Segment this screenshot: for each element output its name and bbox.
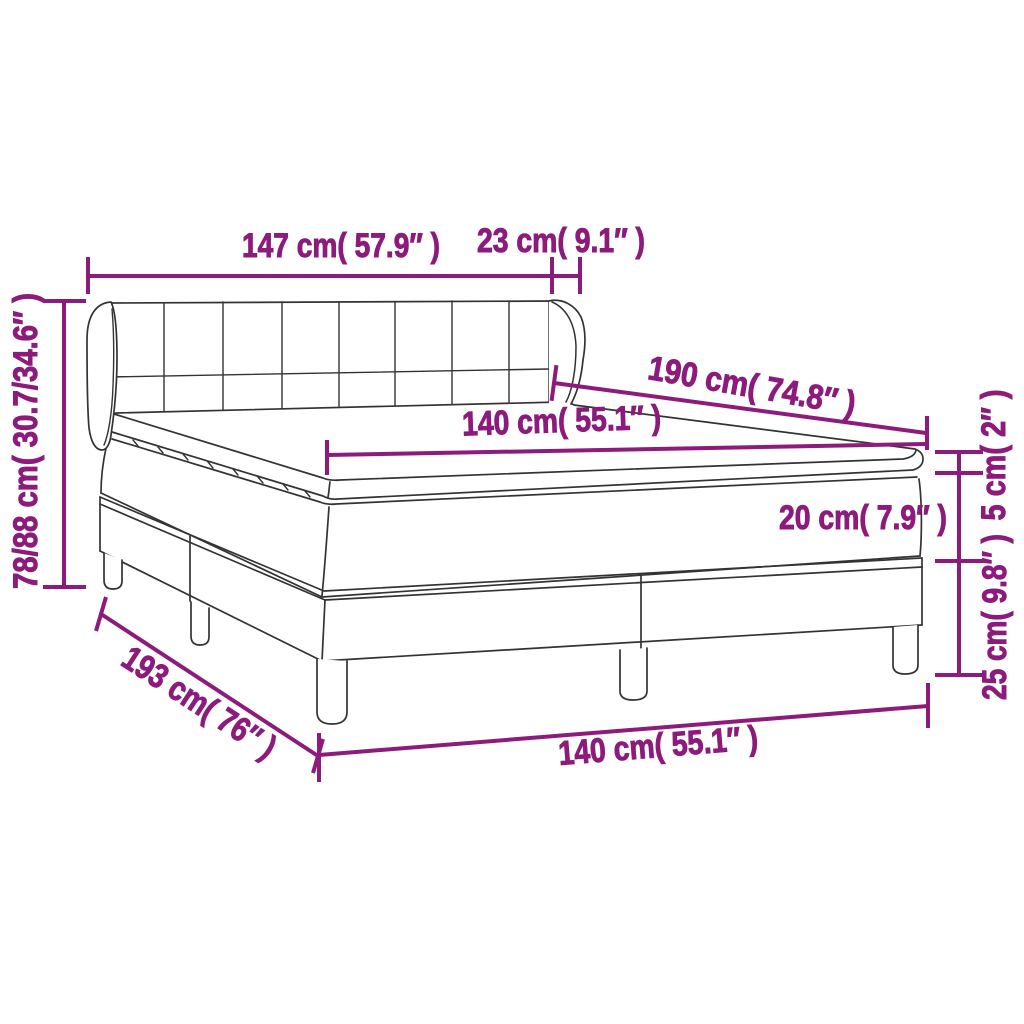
svg-text:140 cm( 55.1″ ): 140 cm( 55.1″ )	[462, 399, 662, 444]
svg-text:20 cm( 7.9″ ): 20 cm( 7.9″ )	[779, 499, 947, 537]
svg-text:23 cm( 9.1″ ): 23 cm( 9.1″ )	[477, 222, 645, 260]
svg-text:5 cm( 2″ ): 5 cm( 2″ )	[975, 390, 1013, 521]
svg-text:25 cm( 9.8″ ): 25 cm( 9.8″ )	[976, 534, 1014, 700]
svg-text:78/88 cm( 30.7/34.6″ ): 78/88 cm( 30.7/34.6″ )	[7, 293, 45, 589]
svg-text:147 cm( 57.9″ ): 147 cm( 57.9″ )	[242, 227, 440, 265]
